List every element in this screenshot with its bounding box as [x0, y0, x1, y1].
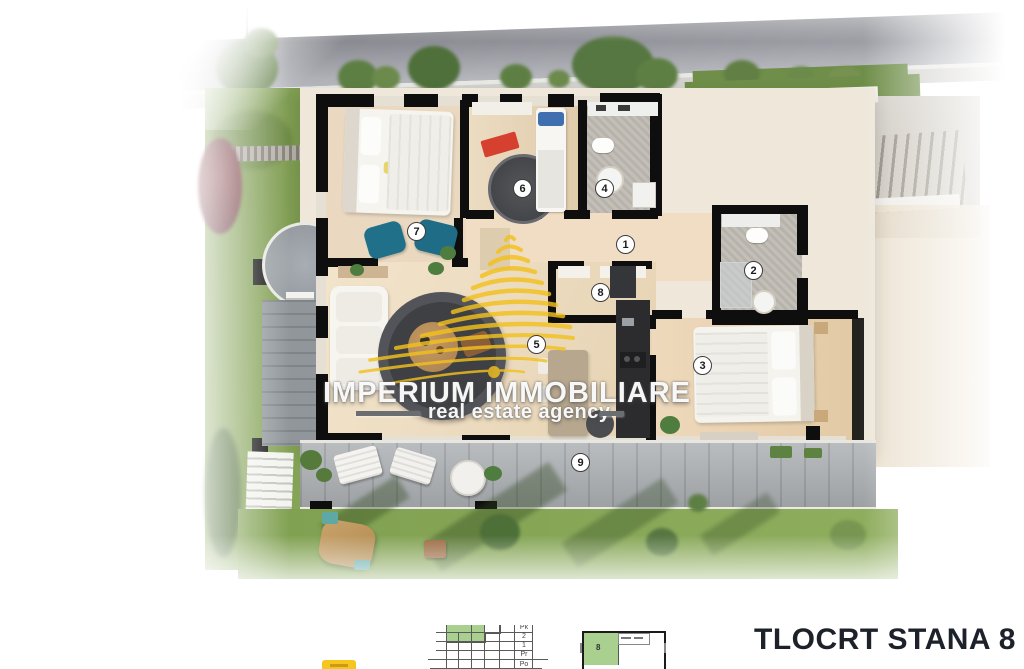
legend-box — [618, 633, 650, 645]
terrace-plant — [316, 468, 332, 482]
vanity-bath2 — [722, 214, 780, 227]
terrace-table — [450, 460, 486, 496]
room-marker-1: 1 — [616, 235, 635, 254]
basin-bath2 — [752, 290, 776, 314]
deck-cushion — [354, 560, 370, 570]
nightstand — [814, 410, 828, 422]
agency-logo-tree-icon — [356, 230, 624, 398]
partial-logo — [322, 660, 356, 669]
building-section-diagram: Pk 2 1 Pr Po — [428, 618, 553, 669]
tree — [372, 66, 400, 90]
floorplan-image: IMPERIUM IMMOBILIARE real estate agency … — [0, 0, 1024, 669]
room-marker-4: 4 — [595, 179, 614, 198]
room-marker-8: 8 — [591, 283, 610, 302]
tree — [500, 64, 532, 90]
planter — [770, 446, 792, 458]
bed-room6 — [536, 108, 566, 212]
tree — [688, 494, 708, 512]
red-tree — [198, 138, 242, 234]
washer-bath4 — [632, 182, 656, 208]
bed-room3 — [693, 325, 815, 423]
watermark-divider — [600, 411, 624, 416]
floor-plate-diagram: 8 — [580, 629, 668, 669]
deck-cushion — [322, 512, 338, 524]
room-marker-9: 9 — [571, 453, 590, 472]
wardrobe-room6 — [472, 102, 532, 115]
tree — [408, 46, 460, 90]
terrace-plant — [300, 450, 322, 470]
toilet-bath2 — [746, 228, 768, 243]
floor-label: 2 — [515, 632, 533, 641]
tree — [830, 520, 866, 550]
tree — [646, 528, 678, 556]
toilet-bath4 — [592, 138, 614, 153]
hedge — [205, 428, 241, 558]
nightstand — [814, 322, 828, 334]
room-marker-7: 7 — [407, 222, 426, 241]
vanity-bath4 — [588, 102, 658, 116]
floor-label: Pr — [515, 650, 533, 659]
room-marker-2: 2 — [744, 261, 763, 280]
tree — [548, 70, 570, 88]
garden-table — [424, 540, 446, 558]
tree — [480, 514, 520, 550]
watermark-tagline: real estate agency — [428, 401, 628, 424]
room-marker-6: 6 — [513, 179, 532, 198]
side-pavement — [262, 300, 318, 446]
room-marker-5: 5 — [527, 335, 546, 354]
floor-label: Pk — [515, 623, 533, 632]
terrace-plant — [484, 466, 502, 481]
bed-room7 — [342, 108, 454, 216]
page-title: TLOCRT STANA 8 — [744, 623, 1016, 657]
room-marker-3: 3 — [693, 356, 712, 375]
floor-label: 1 — [515, 641, 533, 650]
watermark-divider — [356, 411, 420, 416]
unit-number: 8 — [596, 643, 600, 652]
plant — [660, 416, 680, 434]
floor-label: Po — [515, 660, 533, 669]
planter — [804, 448, 822, 458]
tree — [244, 28, 278, 58]
